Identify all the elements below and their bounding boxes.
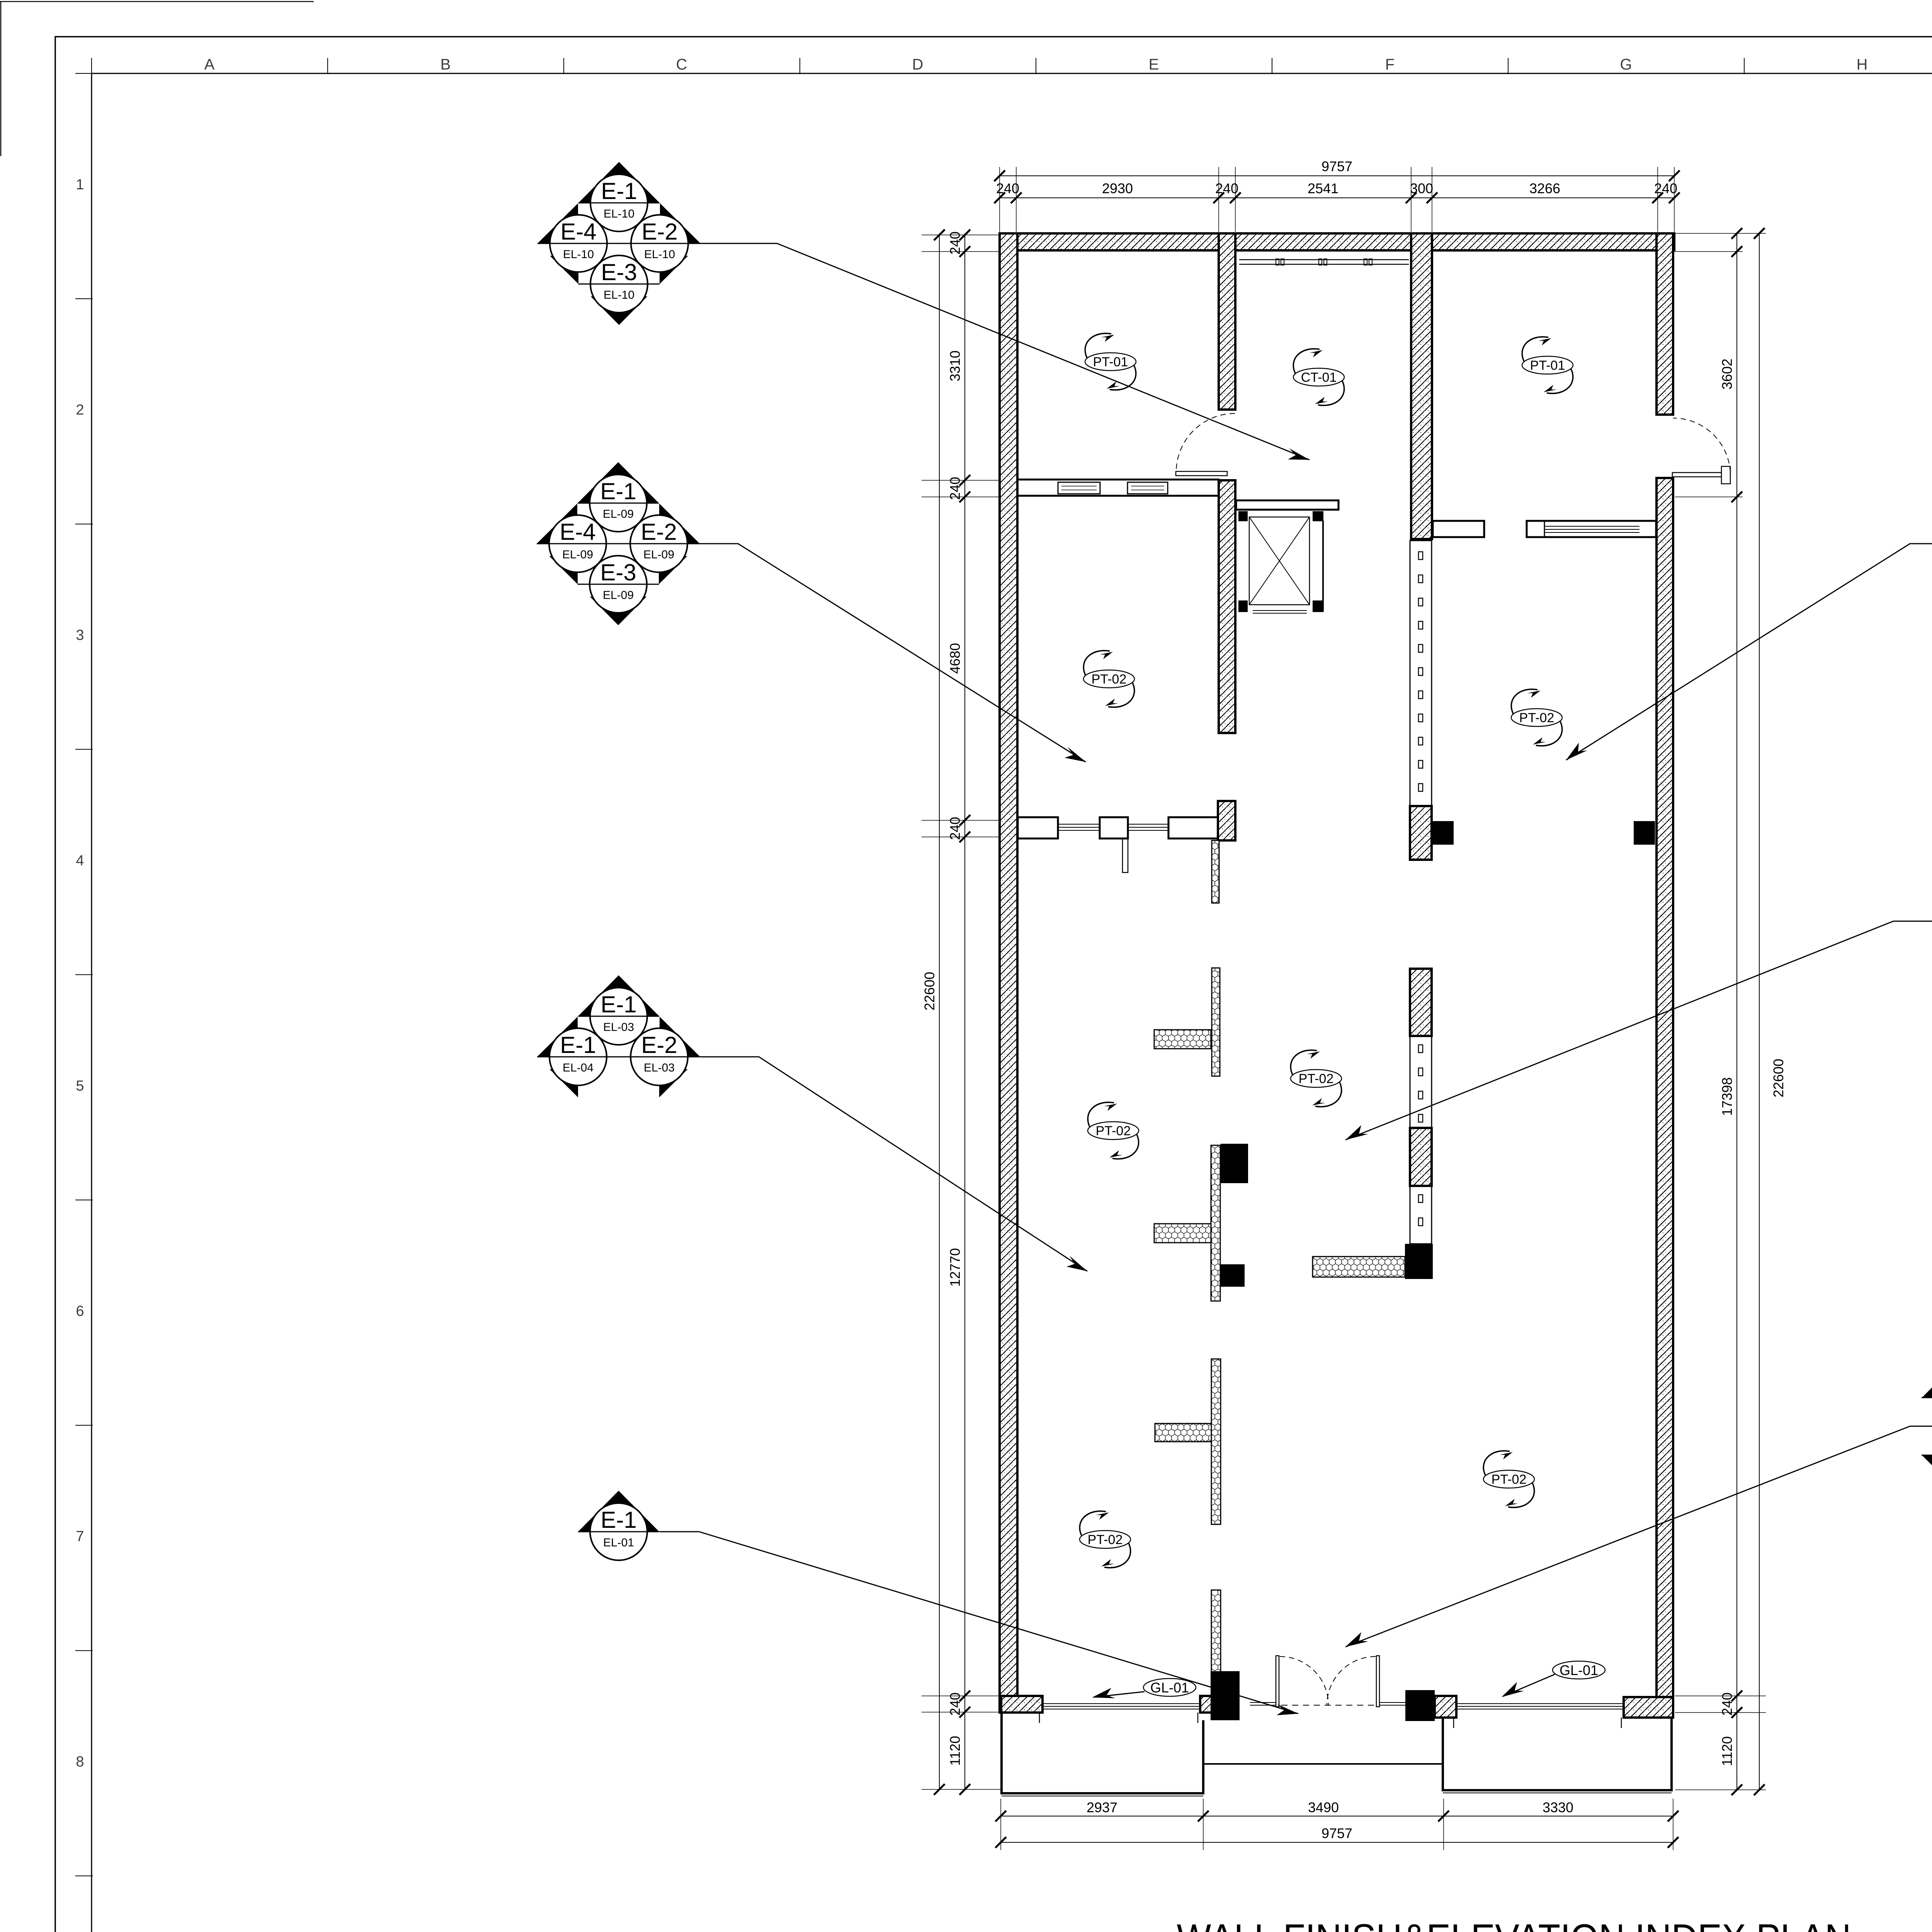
svg-text:7: 7 [76,1529,84,1545]
svg-text:PT-01: PT-01 [1093,355,1128,369]
svg-text:E: E [1149,56,1159,73]
svg-text:EL-09: EL-09 [603,508,634,520]
svg-text:GL-01: GL-01 [1560,1662,1598,1678]
svg-text:CT-01: CT-01 [1301,370,1337,385]
svg-text:F: F [1385,56,1395,73]
svg-text:EL-09: EL-09 [562,548,593,561]
svg-text:PT-02: PT-02 [1492,1472,1527,1487]
svg-text:E-2: E-2 [641,219,677,245]
svg-text:3310: 3310 [947,350,963,381]
svg-text:12770: 12770 [947,1248,963,1287]
svg-text:E-2: E-2 [641,1032,677,1058]
svg-text:C: C [676,56,687,73]
svg-text:3490: 3490 [1308,1799,1339,1815]
svg-text:PT-02: PT-02 [1088,1532,1123,1547]
svg-text:E-3: E-3 [600,560,636,585]
svg-text:1120: 1120 [947,1736,963,1765]
svg-text:1120: 1120 [1719,1736,1735,1766]
svg-text:2541: 2541 [1308,180,1338,196]
svg-text:PT-02: PT-02 [1519,711,1554,725]
svg-text:E-4: E-4 [560,519,595,545]
svg-text:E-1: E-1 [600,478,636,504]
svg-text:PT-01: PT-01 [1530,358,1565,373]
svg-text:3330: 3330 [1543,1799,1573,1815]
svg-text:E-1: E-1 [560,1032,596,1058]
svg-text:EL-10: EL-10 [604,289,634,301]
svg-text:EL-10: EL-10 [644,248,675,261]
svg-text:B: B [440,56,451,73]
svg-text:22600: 22600 [1770,1059,1786,1097]
svg-text:E-1: E-1 [600,992,636,1017]
svg-text:EL-03: EL-03 [644,1061,675,1074]
svg-text:EL-10: EL-10 [563,248,594,261]
svg-text:D: D [912,56,923,73]
svg-text:A: A [204,56,215,73]
svg-text:9757: 9757 [1321,1825,1352,1841]
svg-text:E-3: E-3 [601,259,637,285]
svg-text:17398: 17398 [1719,1077,1735,1116]
svg-text:PT-02: PT-02 [1096,1124,1131,1138]
svg-text:2930: 2930 [1102,180,1133,196]
svg-text:PT-02: PT-02 [1299,1071,1334,1086]
svg-text:4: 4 [76,852,84,869]
svg-text:3: 3 [76,627,84,643]
svg-text:EL-03: EL-03 [603,1021,634,1034]
svg-text:4680: 4680 [947,643,963,674]
svg-text:EL-09: EL-09 [643,548,674,561]
svg-text:G: G [1620,56,1632,73]
svg-text:9757: 9757 [1321,158,1352,174]
svg-text:E-1: E-1 [600,1507,636,1533]
svg-text:H: H [1857,56,1868,73]
svg-text:1: 1 [76,177,84,193]
svg-text:EL-01: EL-01 [603,1536,634,1549]
svg-text:E-1: E-1 [601,178,637,204]
svg-text:5: 5 [76,1078,84,1094]
svg-text:22600: 22600 [922,972,937,1010]
svg-text:2: 2 [76,402,84,418]
svg-text:E-2: E-2 [641,519,677,545]
svg-text:WALL FINISH&ELEVATION INDEX PL: WALL FINISH&ELEVATION INDEX PLAN [1177,1916,1851,1932]
svg-text:8: 8 [76,1754,84,1770]
svg-text:EL-10: EL-10 [604,207,634,220]
svg-text:EL-09: EL-09 [603,589,634,602]
svg-text:EL-04: EL-04 [563,1061,594,1074]
svg-text:2937: 2937 [1087,1799,1117,1815]
svg-text:GL-01: GL-01 [1150,1680,1189,1696]
svg-text:3602: 3602 [1719,359,1735,389]
svg-text:3266: 3266 [1529,180,1560,196]
svg-text:PT-02: PT-02 [1092,672,1127,687]
svg-text:6: 6 [76,1303,84,1320]
svg-text:E-4: E-4 [560,219,596,245]
svg-text:300: 300 [1410,180,1433,196]
